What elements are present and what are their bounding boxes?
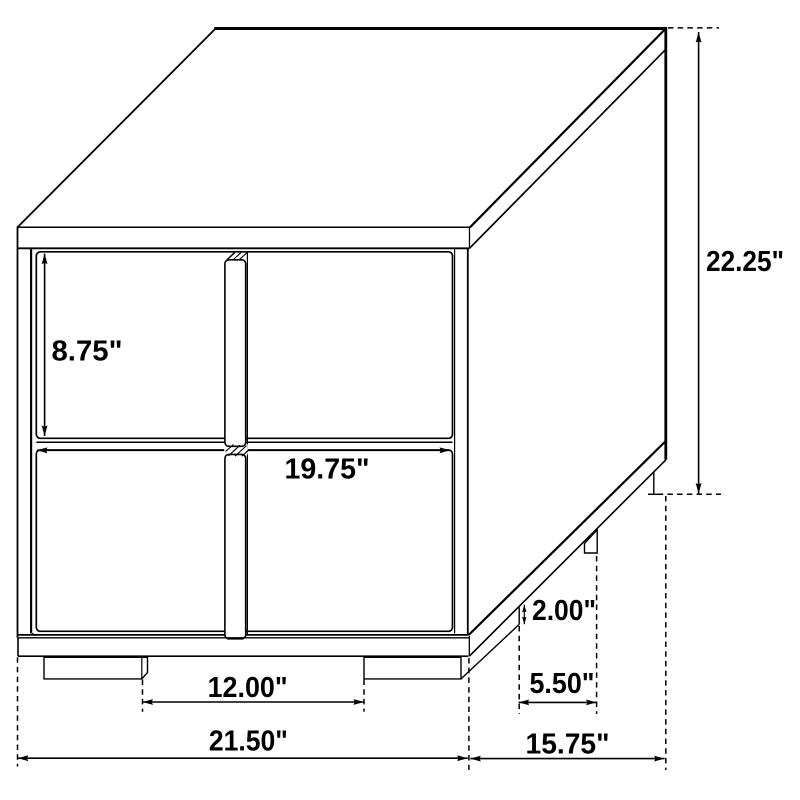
svg-text:5.50": 5.50" xyxy=(530,668,595,700)
svg-text:8.75": 8.75" xyxy=(52,336,123,368)
svg-text:21.50": 21.50" xyxy=(209,726,288,758)
svg-text:15.75": 15.75" xyxy=(526,728,610,760)
svg-text:2.00": 2.00" xyxy=(532,595,596,627)
svg-text:12.00": 12.00" xyxy=(208,672,288,704)
svg-text:19.75": 19.75" xyxy=(285,454,370,486)
svg-text:22.25": 22.25" xyxy=(706,246,784,278)
